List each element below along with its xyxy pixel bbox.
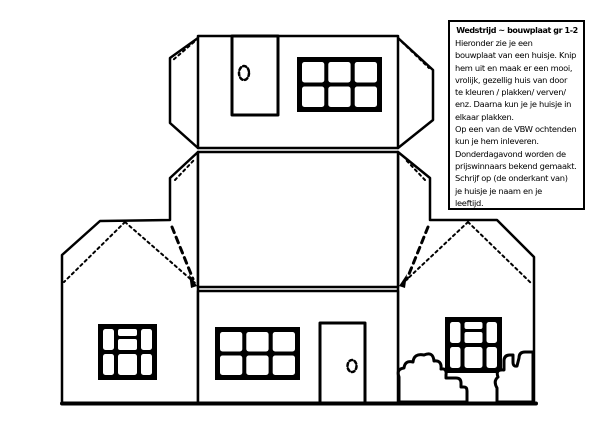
window-pane [103,354,114,375]
roof-panel [198,152,398,287]
instructions-box: Wedstrijd ~ bouwplaat gr 1-2 Hieronder z… [448,20,585,210]
instructions-line: Schrijf op (de onderkant van) [455,172,579,184]
instructions-line: hem uit en maak er een mooi, [455,62,579,74]
window-pane [465,322,483,329]
instructions-line: je huisje je naam en je [455,185,579,197]
window-pane [487,322,498,343]
window-pane [118,329,137,336]
window-pane [487,347,498,368]
window-pane [118,339,137,350]
instructions-line: leeftijd. [455,197,579,209]
window-pane [302,62,324,83]
window-pane [328,87,350,108]
right-glue-tab [398,38,433,148]
window-pane [302,87,324,108]
window-pane [450,347,461,368]
instructions-title: Wedstrijd ~ bouwplaat gr 1-2 [455,25,579,37]
back-door [232,36,278,115]
window-pane [355,87,377,108]
window-pane [355,62,377,83]
instructions-line: Donderdagavond worden de [455,148,579,160]
window-pane [246,356,268,376]
instructions-line: Op een van de VBW ochtenden [455,123,579,135]
window-pane [141,354,152,375]
instructions-line: te kleuren / plakken/ verven/ [455,86,579,98]
front-door [320,323,365,404]
instructions-line: enz. Daarna kun je je huisje in [455,98,579,110]
instructions-line: kun je hem inleveren. [455,135,579,147]
left-glue-tab [170,38,198,148]
window-pane [141,329,152,350]
instructions-line: Hieronder zie je een [455,37,579,49]
window-pane [220,356,242,376]
instructions-line: bouwplaat van een huisje. Knip [455,49,579,61]
window-pane [328,62,350,83]
front-window [215,327,300,380]
window-pane [220,332,242,352]
window-pane [450,322,461,343]
window-pane [465,332,483,343]
back-window [297,57,382,112]
window-pane [118,354,137,375]
left-gable-window [98,324,157,380]
instructions-line: vrolijk, gezellig huis van door [455,74,579,86]
window-pane [465,347,483,368]
window-pane [273,356,295,376]
worksheet-page: Wedstrijd ~ bouwplaat gr 1-2 Hieronder z… [0,0,600,425]
instructions-line: elkaar plakken. [455,111,579,123]
window-pane [246,332,268,352]
right-gable-window [445,317,502,373]
instructions-line: prijswinnaars bekend gemaakt. [455,160,579,172]
window-pane [103,329,114,350]
window-pane [273,332,295,352]
